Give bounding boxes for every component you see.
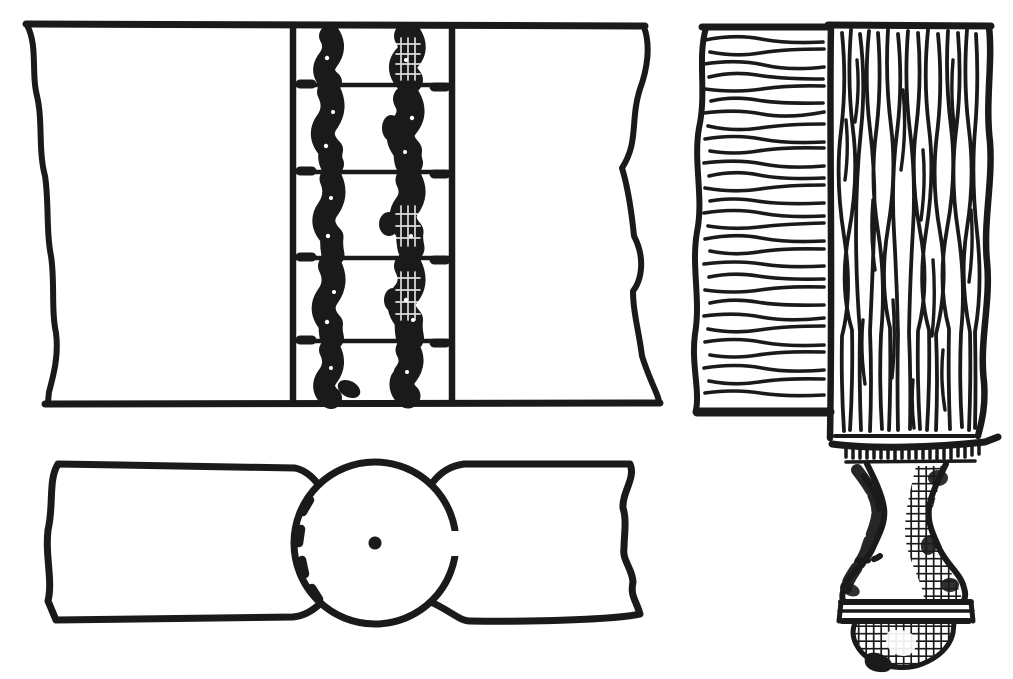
blob-bump	[384, 288, 402, 312]
elevation-right-broken-edge	[622, 27, 659, 402]
knuckle-band	[293, 27, 452, 402]
leg-top-edge	[828, 25, 991, 26]
elevation-left-broken-edge	[27, 25, 57, 402]
glue-blob-left-2	[323, 92, 333, 164]
ink-layer	[26, 24, 998, 672]
glue-blob-left-3	[324, 179, 334, 255]
knuckle-joint-plan	[47, 462, 640, 624]
glue-blobs	[323, 36, 412, 398]
plan-right-bar-outline	[433, 464, 640, 621]
illustration-plate	[0, 0, 1013, 679]
plan-left-bar-outline	[47, 464, 321, 620]
elevation-bottom-edge	[45, 403, 660, 404]
leg-left-edge	[830, 25, 831, 438]
rail-grain-lines	[704, 37, 824, 396]
glue-blob-left-5	[324, 350, 333, 398]
side-rail	[694, 27, 830, 412]
turned-foot	[832, 437, 998, 672]
rail-left-broken-edge	[694, 28, 706, 410]
leg-right-edge	[978, 27, 991, 436]
square-leg	[828, 25, 991, 438]
plan-circle-print-gap	[449, 531, 462, 556]
woodworking-joints-figure	[0, 0, 1013, 679]
blob-bump	[382, 115, 400, 141]
rail-and-turned-leg	[694, 25, 998, 672]
glue-blob-left-4	[324, 266, 334, 338]
plan-pivot-pin-dot	[369, 537, 382, 550]
knuckle-joint-elevation	[26, 24, 660, 404]
elevation-top-edge	[26, 24, 645, 26]
blob-bump	[379, 212, 399, 236]
leg-grain-lines	[839, 30, 980, 431]
